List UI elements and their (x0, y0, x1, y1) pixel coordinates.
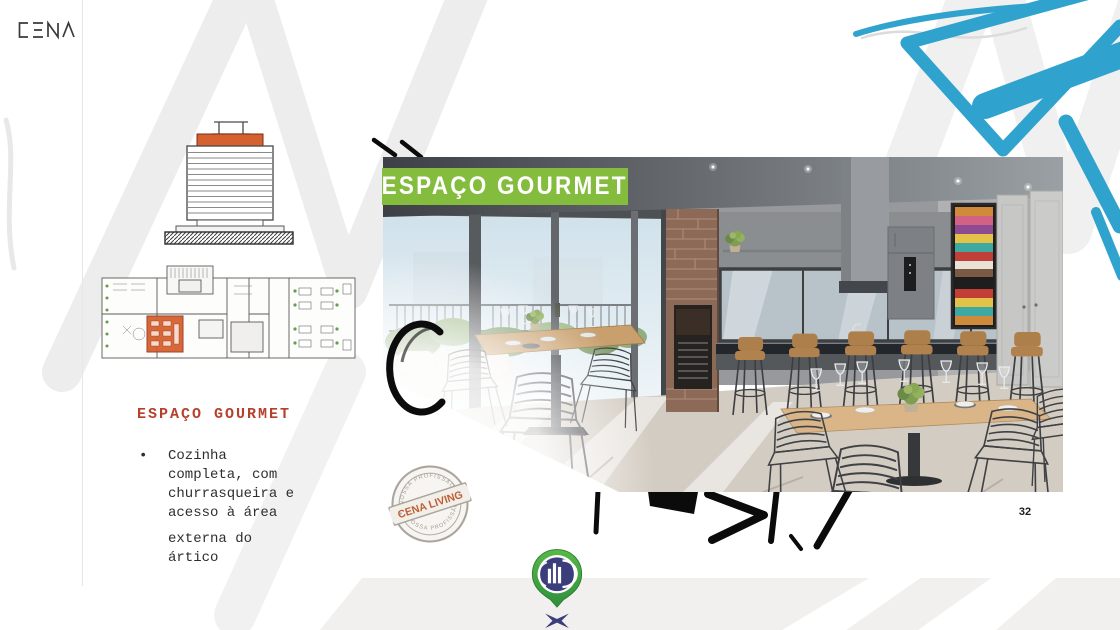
photo-title-banner: ESPAÇO GOURMET (382, 168, 628, 205)
page-number: 32 (1008, 506, 1042, 518)
building-elevation-drawing (162, 112, 296, 248)
bottom-gray-band (320, 552, 1120, 630)
bullet-item: • Cozinha completa, com churrasqueira e … (133, 447, 313, 523)
range-hood (839, 157, 891, 293)
bullet-item-continued: externa do ártico (133, 530, 313, 568)
floor-plan-drawing (99, 264, 359, 366)
bullet-text: Cozinha completa, com churrasqueira e ac… (168, 447, 306, 523)
gourmet-room-rendering (383, 157, 1063, 492)
cena-logo (16, 20, 80, 40)
bullet-list: • Cozinha completa, com churrasqueira e … (133, 447, 313, 568)
section-heading: ESPAÇO GOURMET (137, 406, 291, 423)
antenna (212, 122, 250, 134)
colorful-artwork (952, 204, 996, 328)
ground-hatch (165, 232, 293, 244)
plan-highlight-gourmet-room (147, 316, 183, 352)
bullet-text-continued: externa do ártico (168, 530, 306, 568)
tower-body (187, 146, 273, 220)
photo-title-banner-label: ESPAÇO GOURMET (382, 172, 628, 201)
base-slab (176, 226, 284, 232)
pin-x-mark (545, 613, 569, 628)
cena-logo-glyphs (20, 23, 75, 37)
location-pin-logo (514, 545, 600, 629)
presentation-slide: CENA (0, 0, 1120, 630)
fridge (888, 227, 934, 319)
rooftop-highlight (197, 134, 263, 146)
white-double-doors (997, 191, 1063, 387)
bullet-marker: • (133, 447, 168, 523)
